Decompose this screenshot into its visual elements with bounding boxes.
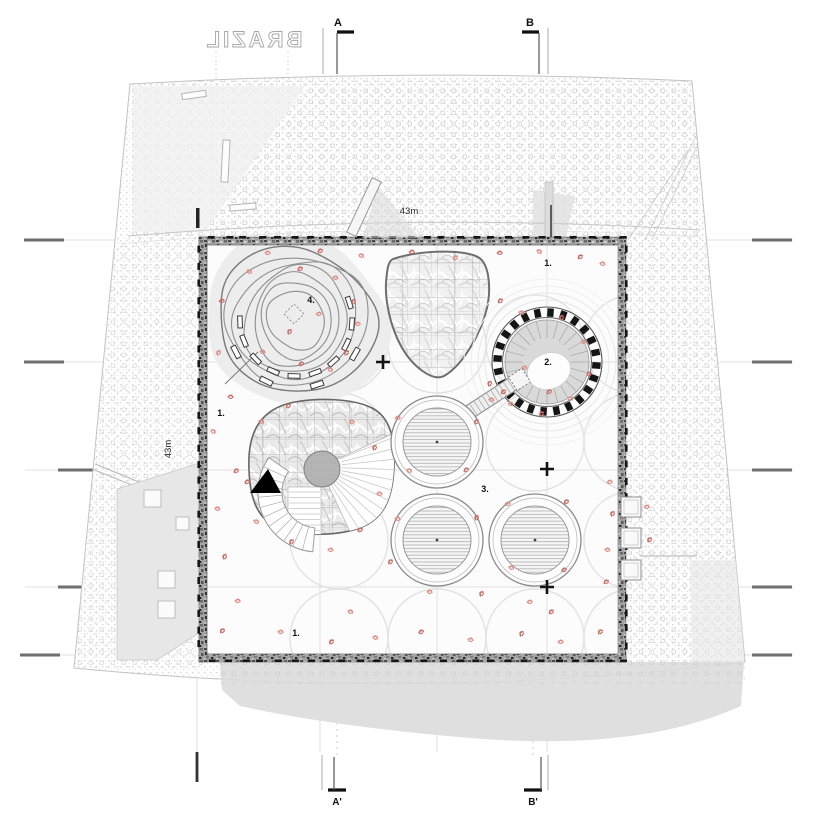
person-base	[609, 483, 612, 484]
wall-dash	[602, 236, 609, 239]
grid-tick-right	[752, 239, 792, 242]
wall-dash	[625, 380, 628, 387]
east-box	[621, 528, 641, 548]
wall-dash	[197, 511, 200, 518]
wall-dash	[357, 660, 364, 663]
wall-dash	[323, 660, 330, 663]
wall-dash	[505, 236, 512, 239]
wall-dash	[625, 478, 628, 485]
ring-voussoir	[547, 308, 554, 317]
wall-dash	[625, 362, 628, 369]
area-label: 3.	[481, 484, 489, 494]
wall-axis-dash	[196, 208, 200, 228]
skylight	[158, 571, 175, 588]
east-box	[621, 560, 641, 580]
wall-dash	[197, 445, 200, 452]
wall-dash	[197, 477, 200, 484]
area-label: 1.	[217, 408, 225, 418]
east-box	[621, 497, 641, 517]
wall-dash	[625, 594, 628, 601]
wall-dash	[208, 236, 215, 239]
wall-dash	[197, 560, 200, 567]
person-base	[356, 325, 359, 326]
wall-dash	[308, 660, 315, 663]
wall-dash	[620, 236, 627, 239]
person-base	[506, 505, 509, 506]
wall-dash	[256, 660, 263, 663]
wall-dash	[292, 236, 299, 239]
wall-dash	[539, 236, 546, 239]
wall-dash	[197, 427, 200, 434]
wall-dash	[625, 643, 628, 650]
wall-dash	[421, 660, 428, 663]
wall-dash	[487, 236, 494, 239]
wall-dash	[457, 236, 464, 239]
grid-tick-left	[58, 469, 98, 472]
wall-dash	[197, 492, 200, 499]
amphi-bench	[238, 316, 243, 328]
section-label-b: B	[526, 17, 534, 29]
wall-dash	[197, 263, 200, 270]
ring-voussoir	[493, 355, 502, 362]
floor-plan-page: 1.1.1.2.3.4. 43m 43m A B A' B' BRAZIL	[0, 0, 818, 818]
wall-dash	[620, 660, 627, 663]
wall-dash	[197, 412, 200, 419]
wall-dash	[625, 624, 628, 631]
wall-dash	[340, 236, 347, 239]
grid-tick-right	[752, 654, 792, 657]
wall-dash	[472, 660, 479, 663]
wall-dash	[197, 627, 200, 634]
wall-dash	[225, 660, 232, 663]
wall-dash	[373, 660, 380, 663]
person-base	[266, 254, 269, 255]
wall-dash	[197, 297, 200, 304]
wall-east	[618, 237, 626, 662]
person-base	[559, 643, 562, 644]
wall-dash	[572, 660, 579, 663]
grid-tick-left	[20, 654, 60, 657]
wall-dash	[197, 394, 200, 401]
wall-dash	[522, 236, 529, 239]
wall-dash	[521, 660, 528, 663]
wall-dash	[197, 461, 200, 468]
person-base	[509, 405, 512, 406]
wall-dash	[625, 394, 628, 401]
wall-dash	[274, 236, 281, 239]
person-base	[498, 254, 501, 255]
wall-dash	[197, 610, 200, 617]
wall-dash	[556, 660, 563, 663]
grid-tick-right	[752, 361, 792, 364]
area-label: 4.	[307, 295, 315, 305]
wall-dash	[405, 660, 412, 663]
wall-dash	[487, 660, 494, 663]
person-base	[221, 302, 224, 303]
project-title-mirrored: BRAZIL	[204, 27, 303, 52]
skylight	[176, 517, 189, 530]
skylight	[158, 601, 175, 618]
wall-dash	[197, 360, 200, 367]
section-marker-b-top: B	[522, 17, 548, 74]
nest-oculus-grid	[304, 451, 340, 487]
wall-dash	[197, 541, 200, 548]
person-base	[350, 423, 353, 424]
wall-dash	[606, 660, 613, 663]
wall-dash	[275, 660, 282, 663]
wall-dash	[473, 236, 480, 239]
wall-dash	[292, 660, 299, 663]
wall-dash	[197, 330, 200, 337]
wall-dash	[338, 660, 345, 663]
wall-dash	[324, 236, 331, 239]
section-marker-a-top: A	[323, 17, 354, 74]
person-base	[318, 315, 321, 316]
wall-dash	[625, 410, 628, 417]
stipple-south-strip	[218, 662, 745, 684]
wall-dash	[197, 594, 200, 601]
wall-dash	[197, 378, 200, 385]
wall-dash	[424, 236, 431, 239]
wall-dash	[589, 236, 596, 239]
bottom-axis-tick	[196, 752, 199, 782]
person-base	[397, 419, 400, 420]
wall-west	[199, 237, 207, 662]
wall-dash	[625, 428, 628, 435]
basin-center	[436, 441, 439, 444]
wall-dash	[197, 527, 200, 534]
person-base	[279, 633, 282, 634]
wall-dash	[625, 264, 628, 271]
wall-dash	[197, 311, 200, 318]
wall-dash	[625, 294, 628, 301]
wall-dash	[440, 660, 447, 663]
wall-dash	[197, 577, 200, 584]
wall-dash	[209, 660, 216, 663]
grid-tick-left	[24, 239, 64, 242]
wall-dash	[226, 236, 233, 239]
wall-dash	[239, 236, 246, 239]
area-label: 1.	[544, 258, 552, 268]
grid-tick-right	[752, 469, 792, 472]
wall-dash	[625, 461, 628, 468]
wall-dash	[625, 609, 628, 616]
water-basin	[489, 494, 581, 586]
wall-dash	[625, 346, 628, 353]
site-plan-drawing: 1.1.1.2.3.4. 43m 43m A B A' B' BRAZIL	[0, 0, 818, 818]
wall-dash	[391, 660, 398, 663]
section-marker-a-bottom: A'	[322, 755, 346, 808]
wall-dash	[538, 660, 545, 663]
basin-center	[534, 539, 537, 542]
water-basin	[391, 396, 483, 488]
shade-right-edge	[690, 560, 744, 662]
wall-dash	[197, 640, 200, 647]
wall-dash	[259, 236, 266, 239]
wall-dash	[625, 280, 628, 287]
amphi-bench	[288, 374, 300, 379]
wall-dash	[457, 660, 464, 663]
wall-dash	[197, 279, 200, 286]
wall-dash	[625, 311, 628, 318]
water-basin	[391, 494, 483, 586]
dimension-left: 43m	[163, 440, 174, 459]
dimension-top: 43m	[400, 206, 419, 217]
wall-dash	[554, 236, 561, 239]
wall-dash	[197, 246, 200, 253]
wall-dash	[625, 246, 628, 253]
section-label-a: A	[334, 17, 342, 29]
grid-tick-left	[24, 361, 64, 364]
wall-dash	[437, 236, 444, 239]
wall-dash	[505, 660, 512, 663]
wall-dash	[625, 330, 628, 337]
person-base	[428, 593, 431, 594]
wall-dash	[307, 236, 314, 239]
bench-mark	[221, 140, 230, 182]
wall-dash	[625, 445, 628, 452]
wall-dash	[570, 236, 577, 239]
basin-center	[436, 539, 439, 542]
fin-wall	[545, 182, 553, 238]
skylight	[144, 490, 161, 507]
wall-dash	[587, 660, 594, 663]
section-label-b-prime: B'	[528, 797, 538, 808]
ring-voussoir	[592, 362, 601, 369]
person-base	[582, 343, 585, 344]
grid-tick-right	[752, 586, 792, 589]
person-base	[236, 602, 239, 603]
wall-dash	[197, 345, 200, 352]
area-label: 1.	[292, 628, 300, 638]
section-label-a-prime: A'	[332, 797, 342, 808]
amphi-bench	[349, 318, 354, 330]
area-label: 2.	[544, 357, 552, 367]
section-marker-b-bottom: B'	[524, 755, 548, 808]
person-base	[645, 508, 648, 509]
wall-dash	[243, 660, 250, 663]
person-base	[529, 603, 532, 604]
person-base	[411, 253, 414, 254]
